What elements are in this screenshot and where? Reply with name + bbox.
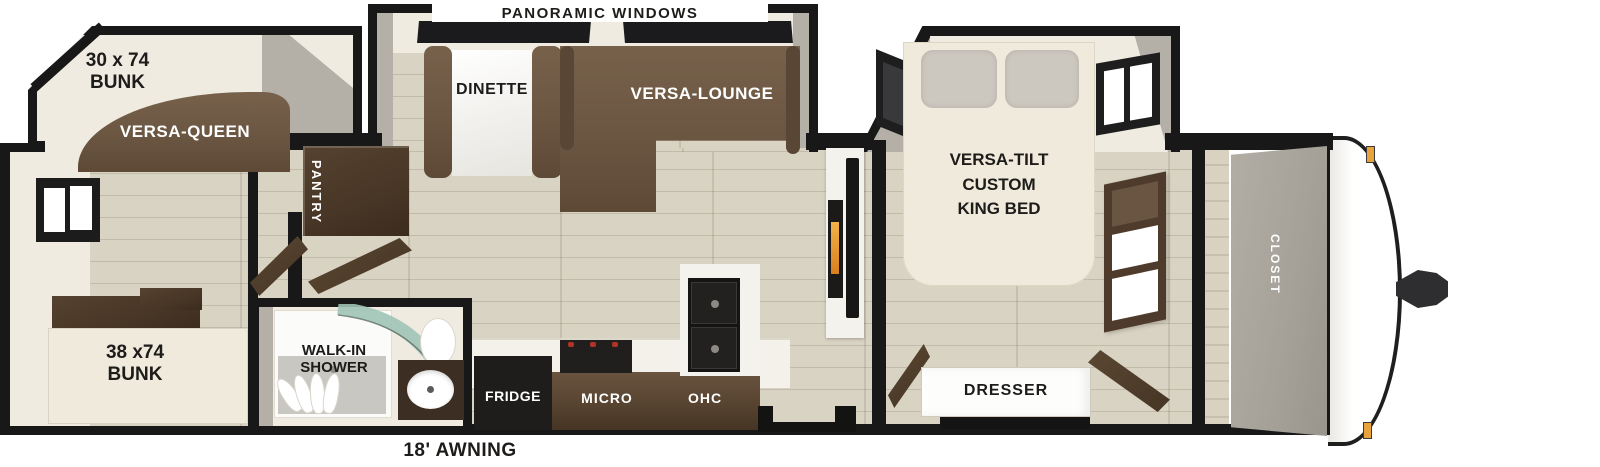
stove-knob <box>590 342 596 347</box>
fireplace-flame <box>831 222 839 274</box>
dresser-base <box>940 414 1090 429</box>
top-wall-segment-right <box>1165 133 1333 150</box>
fridge-label: FRIDGE <box>474 388 552 404</box>
pantry-label: PANTRY <box>308 152 323 232</box>
window-pane <box>1104 68 1124 126</box>
bunk-top-word: BUNK <box>45 72 190 94</box>
entry-step-inner <box>773 406 835 422</box>
ohc-label: OHC <box>670 390 740 406</box>
bunk-bottom-label: 38 x74 BUNK <box>60 342 210 386</box>
versa-lounge-label: VERSA-LOUNGE <box>612 84 792 104</box>
sink-counter <box>398 360 464 420</box>
panoramic-window-right <box>623 21 793 43</box>
stove-knob <box>612 342 618 347</box>
front-cap <box>1328 136 1402 446</box>
hitch-coupler <box>1396 270 1448 308</box>
kitchen-overhead-cabinet: MICRO OHC <box>552 372 760 430</box>
walk-in-shower-label: WALK-IN SHOWER <box>272 342 396 377</box>
versa-queen-label: VERSA-QUEEN <box>95 122 275 142</box>
closet-divider-wall <box>1192 140 1205 432</box>
panoramic-window-left <box>417 21 591 43</box>
closet-paneling <box>1205 148 1229 432</box>
panoramic-label-chip: PANORAMIC WINDOWS <box>432 3 768 22</box>
closet-label: CLOSET <box>1267 234 1281 295</box>
dinette-bench-left <box>424 46 452 178</box>
drawer-knob <box>711 345 719 353</box>
dresser-label: DRESSER <box>922 382 1090 400</box>
panoramic-windows-label: PANORAMIC WINDOWS <box>432 3 768 22</box>
bunk-bottom-word: BUNK <box>60 364 210 386</box>
floorplan-canvas: VERSA-QUEEN 30 x 74 BUNK 38 x74 BUNK PAN… <box>0 0 1600 467</box>
window-pane <box>44 188 65 232</box>
bedroom-divider-wall <box>872 140 886 430</box>
fridge: FRIDGE <box>474 356 552 430</box>
bathroom-outline: WALK-IN SHOWER <box>250 298 472 435</box>
dresser: DRESSER <box>922 368 1090 416</box>
fireplace <box>828 200 843 298</box>
dinette-table <box>452 50 532 176</box>
closet-panel: CLOSET <box>1231 146 1327 436</box>
awning-label: 18' AWNING <box>350 440 570 462</box>
bunk-bottom-headboard-step <box>140 288 202 310</box>
stove-knob <box>568 342 574 347</box>
bunk-top-size: 30 x 74 <box>45 50 190 72</box>
dinette-label: DINETTE <box>442 81 542 99</box>
sink-drain <box>427 386 434 393</box>
window-pane <box>1130 63 1152 121</box>
sofa-armrest-left <box>560 46 574 150</box>
bunk-bottom-size: 38 x74 <box>60 342 210 364</box>
pillow <box>921 50 997 108</box>
king-bed-line1: VERSA-TILT <box>903 148 1095 173</box>
walk-in-line2: SHOWER <box>272 359 396 376</box>
toilet <box>420 318 456 366</box>
window-blind <box>1112 181 1158 227</box>
tv <box>846 158 859 318</box>
marker-light-top <box>1366 146 1375 163</box>
cabinet-drawer <box>691 282 737 324</box>
king-bed-line3: KING BED <box>903 197 1095 222</box>
king-bed-label: VERSA-TILT CUSTOM KING BED <box>903 148 1095 222</box>
bunk-top-label: 30 x 74 BUNK <box>45 50 190 94</box>
bedroom-window-right <box>1096 52 1160 135</box>
dinette-bench-right <box>532 46 562 178</box>
cabinet-drawer <box>691 327 737 369</box>
micro-label: MICRO <box>562 390 652 406</box>
bedroom-side-window <box>1104 171 1166 332</box>
entry-step <box>758 406 856 432</box>
rear-left-window <box>36 178 100 242</box>
marker-light-bottom <box>1363 422 1372 439</box>
window-pane <box>70 186 92 230</box>
living-slide-sidewall-left <box>377 13 393 148</box>
window-pane <box>1112 225 1158 271</box>
pillow <box>1005 50 1079 108</box>
window-pane <box>883 62 903 126</box>
drawer-knob <box>711 300 719 308</box>
kitchen-tall-cabinet <box>688 278 740 372</box>
window-pane <box>1112 269 1158 321</box>
walk-in-line1: WALK-IN <box>272 342 396 359</box>
king-bed-line2: CUSTOM <box>903 173 1095 198</box>
king-bed: VERSA-TILT CUSTOM KING BED <box>903 42 1095 286</box>
stove-cooktop <box>560 340 632 373</box>
